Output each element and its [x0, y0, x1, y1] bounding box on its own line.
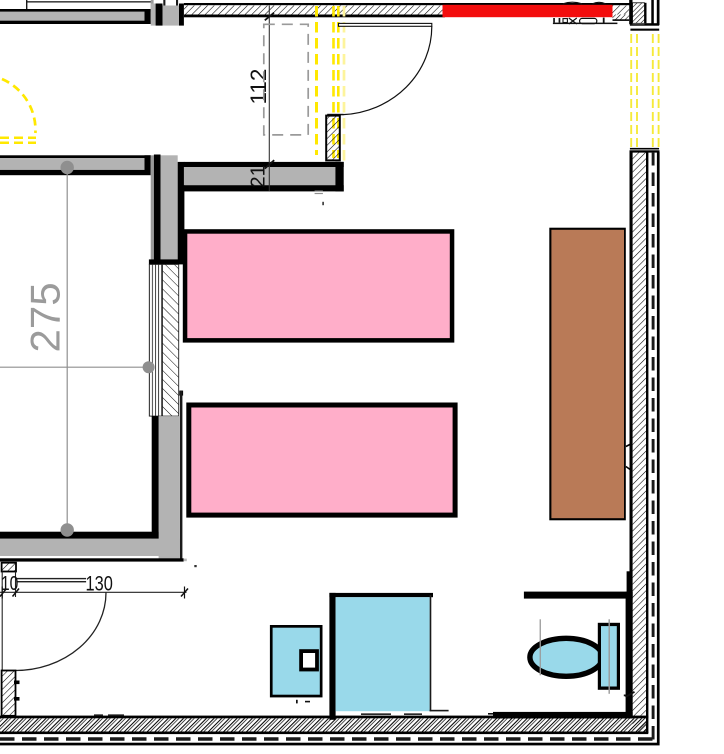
svg-text:130: 130 [86, 572, 113, 595]
svg-text:112: 112 [246, 69, 271, 105]
svg-text:21: 21 [247, 165, 270, 188]
svg-text:275: 275 [22, 282, 69, 352]
